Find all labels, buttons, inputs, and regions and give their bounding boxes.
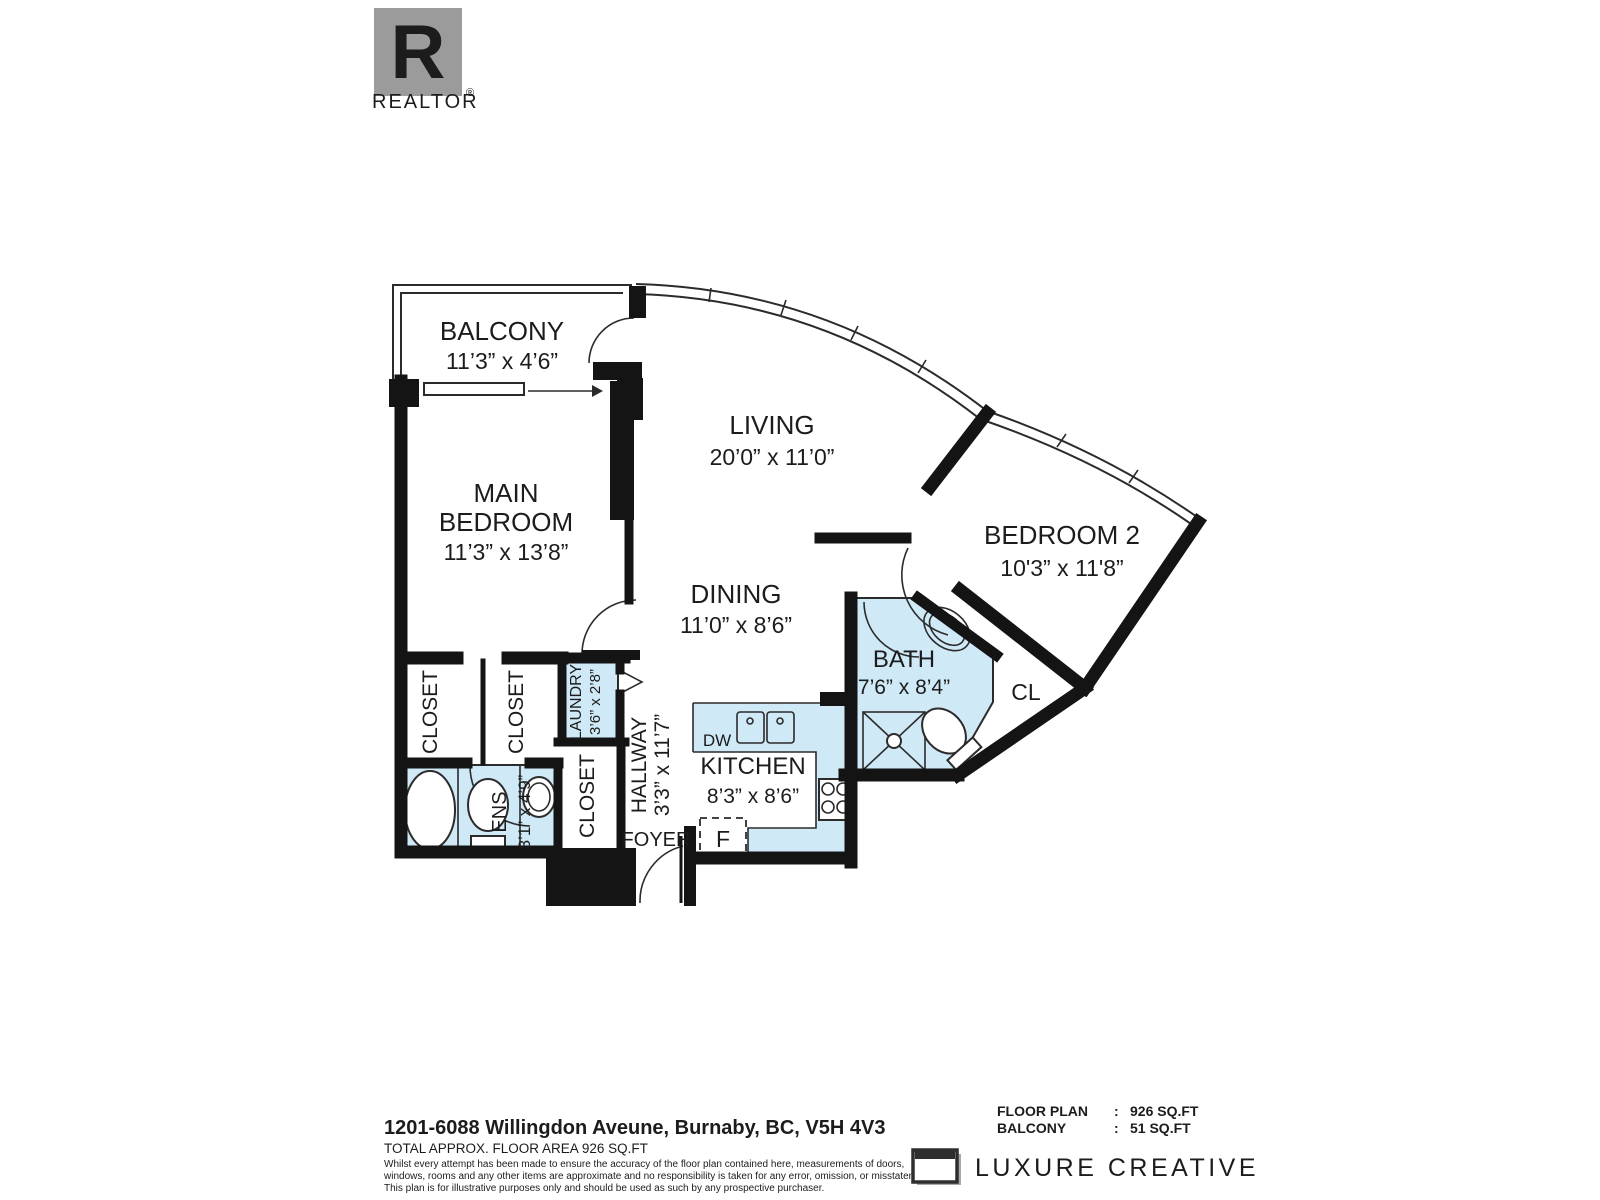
balcony-sliding-door [424, 383, 603, 397]
bedroom2-dims: 10'3” x 11'8” [1000, 555, 1123, 581]
realtor-logo-letter: R [391, 10, 446, 95]
bathtub-icon [405, 771, 455, 849]
laundry-dims: 3’6” x 2’8” [587, 669, 604, 735]
window-arc-inner [636, 294, 980, 419]
window-arc2-inner [980, 419, 1194, 526]
hallway-label: HALLWAY [628, 717, 651, 813]
shower-drain [887, 734, 901, 748]
company-name: LUXURE CREATIVE [975, 1154, 1259, 1182]
company-logo-bar [915, 1151, 955, 1159]
hallway-dims: 3’3” x 11’7” [651, 714, 674, 816]
floor-plan: BALCONY 11’3” x 4’6” LIVING 20’0” x 11’0… [389, 284, 1200, 906]
bedroom2-label: BEDROOM 2 [984, 520, 1140, 550]
balcony-dims: 11’3” x 4’6” [446, 348, 558, 374]
balcony-door-arc [589, 318, 634, 363]
floor-plan-canvas: R REALTOR ® [0, 0, 1600, 1200]
wall-kitchen-block [820, 692, 852, 706]
closet-main-2-label: CLOSET [505, 670, 528, 754]
window-arc2-outer [987, 411, 1200, 519]
area-row1-label: FLOOR PLAN [997, 1103, 1088, 1119]
kitchen-dims: 8’3” x 8’6” [707, 785, 799, 808]
balcony-label: BALCONY [440, 316, 564, 346]
dining-dims: 11’0” x 8’6” [680, 612, 792, 638]
area-row2-value: 51 SQ.FT [1130, 1120, 1191, 1136]
foyer-label: FOYER [622, 829, 691, 851]
area-row2-sep: : [1114, 1120, 1119, 1136]
wall-balcony-right-block [593, 362, 642, 380]
sliding-door-arrow-head [592, 385, 603, 397]
fridge-label: F [716, 826, 730, 852]
area-row1-sep: : [1114, 1103, 1119, 1119]
realtor-logo: R REALTOR ® [372, 8, 479, 113]
area-summary-table: FLOOR PLAN : 926 SQ.FT BALCONY : 51 SQ.F… [997, 1103, 1199, 1136]
wall-foyer-slab [546, 848, 636, 906]
property-address: 1201-6088 Willingdon Aveune, Burnaby, BC… [384, 1117, 885, 1139]
closet-main-1-label: CLOSET [419, 670, 442, 754]
bath-label: BATH [873, 646, 935, 673]
dishwasher-label: DW [703, 731, 731, 750]
entry-door-arc [640, 846, 683, 903]
window-arc-outer [636, 284, 987, 411]
footer: 1201-6088 Willingdon Aveune, Burnaby, BC… [383, 1103, 1259, 1194]
disclaimer-line-2: windows, rooms and any other items are a… [383, 1171, 934, 1182]
realtor-wordmark: REALTOR [372, 91, 479, 113]
company-logo: LUXURE CREATIVE [913, 1150, 1259, 1185]
disclaimer-line-1: Whilst every attempt has been made to en… [384, 1159, 904, 1170]
area-row2-label: BALCONY [997, 1120, 1067, 1136]
living-label: LIVING [729, 410, 814, 440]
disclaimer-line-3: This plan is for illustrative purposes o… [384, 1183, 824, 1194]
dining-label: DINING [691, 579, 782, 609]
ensuite-dims: 8’1” x 4’9” [515, 774, 534, 849]
main-bedroom-label-2: BEDROOM [439, 507, 573, 537]
kitchen-label: KITCHEN [700, 753, 805, 780]
sliding-door-panel [424, 383, 524, 395]
curved-window-wall [636, 284, 1200, 526]
main-bedroom-label-1: MAIN [474, 478, 539, 508]
laundry-label: LAUNDRY [568, 664, 585, 741]
wall-balcony-left-block [389, 379, 419, 407]
closet-bedroom2-label: CL [1011, 679, 1041, 705]
wall-balcony-right-step [617, 378, 643, 420]
main-bedroom-door-arc [582, 600, 636, 654]
wall-window-start-block [629, 286, 646, 318]
main-bedroom-dims: 11’3” x 13’8” [444, 539, 569, 565]
wall-living-bedroom2 [930, 413, 987, 487]
total-area-text: TOTAL APPROX. FLOOR AREA 926 SQ.FT [384, 1141, 648, 1156]
bath-dims: 7’6” x 8’4” [858, 676, 950, 699]
area-row1-value: 926 SQ.FT [1130, 1103, 1199, 1119]
closet-hall-label: CLOSET [576, 754, 599, 838]
ensuite-label: ENS [489, 791, 511, 832]
realtor-registered-mark: ® [466, 87, 474, 99]
floor-plan-page: R REALTOR ® [0, 0, 1600, 1200]
living-dims: 20’0” x 11’0” [710, 444, 835, 470]
